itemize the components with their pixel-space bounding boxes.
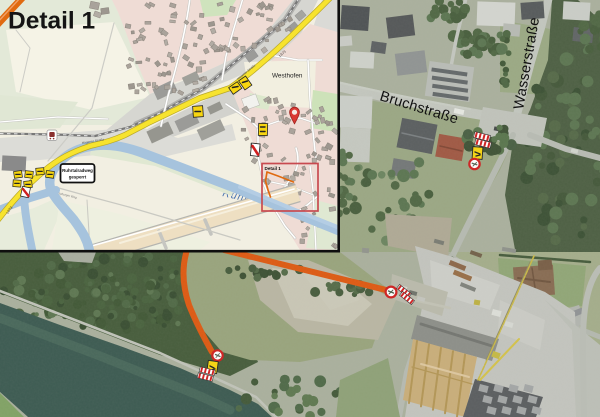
svg-text:Detail 1: Detail 1 <box>265 166 282 171</box>
svg-text:Westhofen: Westhofen <box>272 73 303 80</box>
svg-text:gesperrt: gesperrt <box>69 175 87 180</box>
svg-text:Detail 1: Detail 1 <box>8 8 95 35</box>
svg-text:Ruhrtalradweg: Ruhrtalradweg <box>62 168 93 173</box>
